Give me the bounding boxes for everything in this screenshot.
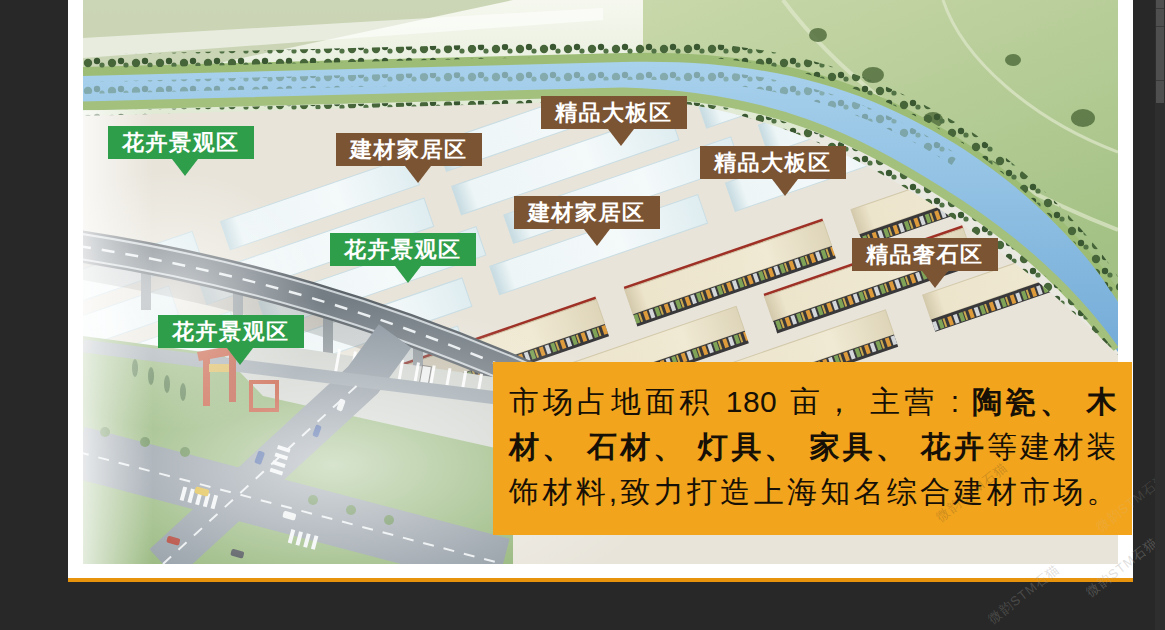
zone-pointer	[772, 179, 798, 196]
zone-label-brown: 精品奢石区	[852, 238, 998, 271]
zone-label-text: 建材家居区	[528, 200, 646, 225]
zone-pointer	[172, 159, 198, 176]
zone-label-brown: 精品大板区	[700, 146, 846, 179]
zone-label-green: 花卉景观区	[330, 233, 476, 266]
zone-pointer	[584, 229, 610, 246]
zone-label-text: 花卉景观区	[122, 130, 240, 155]
zone-pointer	[922, 271, 948, 288]
zone-label-brown: 建材家居区	[336, 133, 482, 166]
zone-label-text: 精品大板区	[555, 100, 673, 125]
haze	[83, 110, 153, 564]
scrollbar-thumb[interactable]	[1156, 0, 1164, 103]
zone-pointer	[608, 129, 634, 146]
market-description-text: 市场占地面积 180 亩， 主营 : 陶瓷、 木材、 石材、 灯具、 家具、 花…	[509, 379, 1117, 514]
zone-label-brown: 建材家居区	[514, 196, 660, 229]
zone-label-green: 花卉景观区	[108, 126, 254, 159]
zone-label-text: 建材家居区	[350, 137, 468, 162]
zone-label-green: 花卉景观区	[158, 315, 304, 348]
zone-label-text: 精品奢石区	[866, 242, 984, 267]
page-background: 花卉景观区建材家居区精品大板区精品大板区建材家居区花卉景观区精品奢石区花卉景观区…	[0, 0, 1165, 630]
market-description-box: 市场占地面积 180 亩， 主营 : 陶瓷、 木材、 石材、 灯具、 家具、 花…	[493, 362, 1132, 535]
zone-pointer	[405, 166, 431, 183]
zone-pointer	[395, 266, 421, 283]
zone-pointer	[227, 348, 253, 365]
card-accent-line	[68, 578, 1133, 582]
scrollbar[interactable]	[1155, 0, 1165, 630]
zone-label-text: 花卉景观区	[344, 237, 462, 262]
zone-label-brown: 精品大板区	[541, 96, 687, 129]
zone-label-text: 精品大板区	[714, 150, 832, 175]
zone-label-text: 花卉景观区	[172, 319, 290, 344]
